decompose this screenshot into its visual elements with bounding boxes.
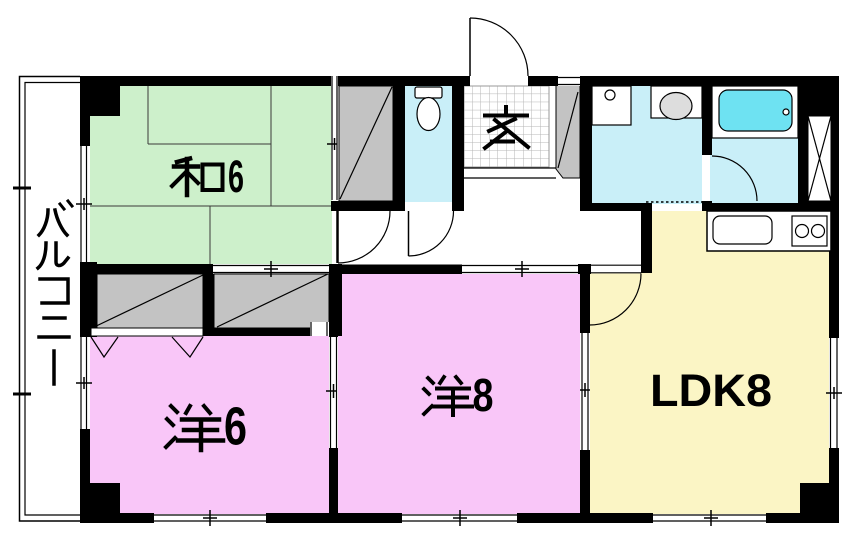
- svg-text:LDK8: LDK8: [650, 365, 772, 416]
- svg-text:6: 6: [224, 397, 247, 457]
- svg-text:8: 8: [473, 369, 494, 421]
- svg-text:6: 6: [228, 151, 244, 202]
